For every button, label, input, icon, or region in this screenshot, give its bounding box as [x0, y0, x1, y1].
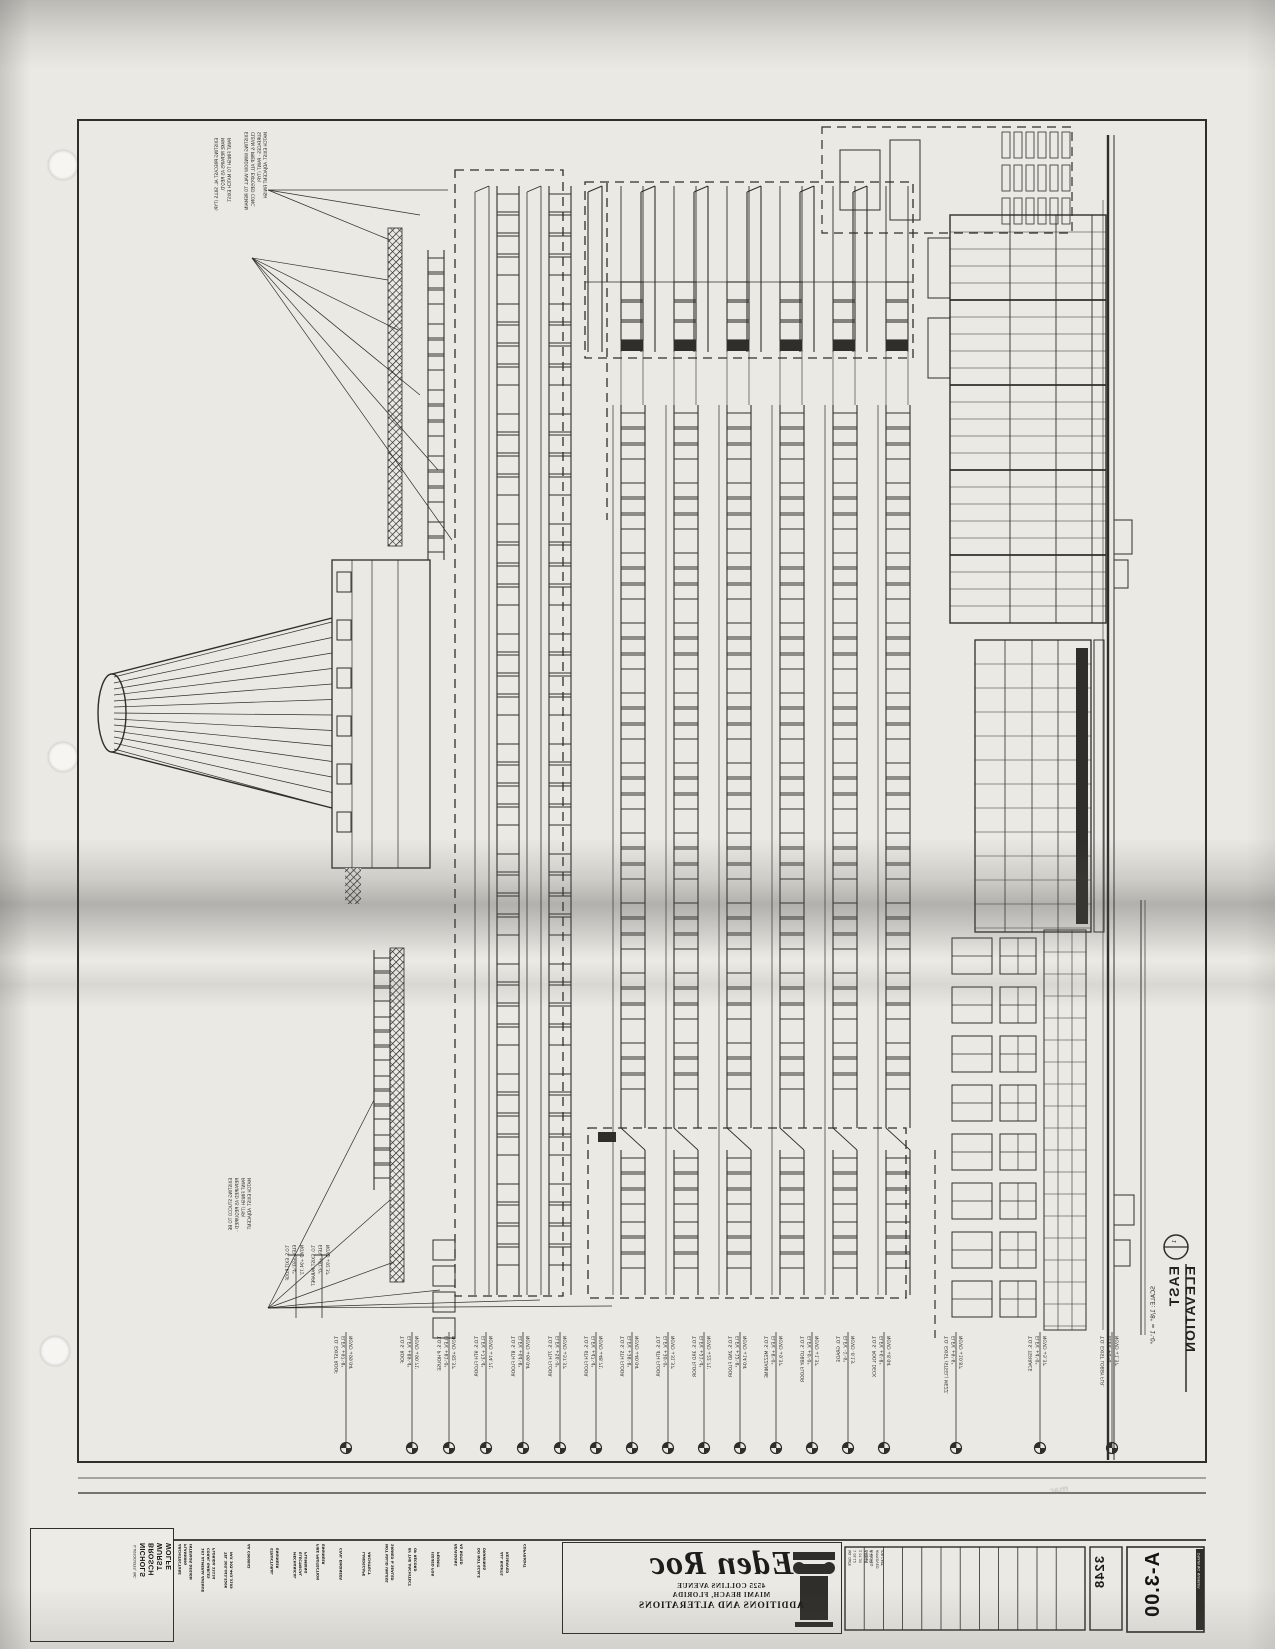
- consultant-column: LANDSCAPE ARCHITECT: [362, 1552, 380, 1636]
- project-identity: Eden Roc 4525 COLLINS AVENUE MIAMI BEACH…: [562, 1542, 840, 1632]
- consultant-column: DO NOT SCALE DRAWINGS: [477, 1548, 495, 1622]
- level-label: T.O. GRADE ELEV. -1'-6" NGVD -0.13': [836, 1336, 859, 1436]
- scanned-sheet: EAST ELEVATION SCALE: 1/8" = 1'-0" 1 T.O…: [0, 0, 1275, 1649]
- keynote: EXISTING WINDOW WALL TO REMAIN CLEAN & P…: [244, 132, 266, 260]
- level-label: T.O.S. P'HOUSE ELEV. +81'-0" NGVD +82.37…: [437, 1336, 460, 1436]
- drawing-title: EAST ELEVATION: [1166, 1266, 1198, 1394]
- level-label: T.O.S. TERRACE ELEV. +4'-0" NGVD +5.37': [1028, 1336, 1051, 1436]
- project-subtitle: ADDITIONS AND ALTERATIONS: [602, 1600, 840, 1612]
- level-label: T.O. EXIST LOBBY FLR. ELEV. +0'-0" NGVD …: [1100, 1336, 1123, 1436]
- sheet-number: A-3.00: [1142, 1552, 1164, 1630]
- consultant-column: TEL 305.443.5206 FAX 305.443.3109: [224, 1552, 242, 1616]
- consultant-column: COPYRIGHT: [523, 1544, 541, 1598]
- level-label: T.O.S. POOL DECK ELEV. +6'-8" NGVD +8.04…: [872, 1336, 895, 1436]
- keynote: EXISTING STUCCO TO BE REPAIRED AS REQUIR…: [228, 1178, 250, 1306]
- consultant-column: STRUCTURAL ENGINEER: [270, 1548, 288, 1632]
- firm-association: & ASSOCIATES, INC.: [133, 1545, 138, 1625]
- project-brand: Eden Roc: [602, 1546, 840, 1582]
- firm-name: NICHOLS BROSCH WURST WOLFE: [140, 1543, 174, 1629]
- drawing-scale: SCALE: 1/8" = 1'-0": [1150, 1286, 1158, 1396]
- level-label: T.O.S. ROOF ELEV. +89'-4" NGVD +90.71': [400, 1336, 423, 1436]
- level-label: T.O.S. 8TH FLOOR ELEV. +64'-8" NGVD +66.…: [511, 1336, 534, 1436]
- consultant-column: BY THE ARCHITECT OF RECORD: [408, 1548, 426, 1612]
- level-label-aux: T.O.S. EXIT ROOF ELEV. +93'-4" NGVD +94.…: [284, 1245, 307, 1317]
- project-address-2: MIAMI BEACH, FLORIDA: [602, 1591, 840, 1600]
- revision-column: NO. DATE 1 05.12 2 07.30 3 09.18 4 11.02: [848, 1550, 862, 1628]
- level-label: T.O.S. 9TH FLOOR ELEV. +73'-4" NGVD +74.…: [474, 1336, 497, 1436]
- level-label: T.O.S. 2ND FLOOR ELEV. +12'-8" NGVD +14.…: [728, 1336, 751, 1436]
- consultant-column: ARCHITECTURE PLANNING INTERIOR DESIGN: [178, 1544, 196, 1628]
- consultant-column: AA C000842: [247, 1544, 265, 1598]
- level-label-aux: T.O. EXIST PARAPET ELEV. +91'-0" NGVD +9…: [310, 1245, 333, 1317]
- level-label: T.O.S. MEZZANINE ELEV. +8'-0" NGVD +9.37…: [764, 1336, 787, 1436]
- sheet-number-label: DRAWING NUMBER: [1197, 1553, 1201, 1627]
- elevation-mark-number: 1: [1172, 1240, 1178, 1252]
- consultant-column: ALL RIGHTS RESERVED: [500, 1552, 518, 1616]
- level-label: T.O.S. LOBBY FLOOR ELEV. +0'-0" NGVD +1.…: [800, 1336, 823, 1436]
- consultant-column: CIVIL ENGINEER: [339, 1548, 357, 1602]
- revision-column: DRAWN CHECKED APPROVED JOB CAPT.: [865, 1550, 879, 1628]
- keynote: EXISTING PRECAST AL. SILLS (TYP) MAKE RE…: [214, 138, 236, 266]
- level-label: T.O.S. 7TH FLOOR ELEV. +56'-0" NGVD +57.…: [548, 1336, 571, 1436]
- level-label: T.O.S. 5TH FLOOR ELEV. +38'-8" NGVD +40.…: [620, 1336, 643, 1436]
- level-label: T.O. EXIST (STEEL) MEZZ. ELEV. +9'-6" NG…: [944, 1336, 967, 1436]
- consultant-column: MECHANICAL ELECTRICAL PLUMBING: [293, 1552, 311, 1626]
- consultant-column: NOT VALID UNLESS SIGNED & SEALED: [385, 1544, 403, 1618]
- level-label: T.O.S. 6TH FLOOR ELEV. +47'-4" NGVD +48.…: [584, 1336, 607, 1436]
- level-label: T.O.S. 3RD FLOOR ELEV. +21'-4" NGVD +22.…: [692, 1336, 715, 1436]
- level-label: T.O. EXIST ROOF ELEV. +97'-8" NGVD +99.0…: [334, 1336, 357, 1436]
- consultant-column: 161 ALMERIA AVENUE CORAL GABLES FLORIDA …: [201, 1548, 219, 1622]
- job-number: 3248: [1093, 1556, 1107, 1622]
- level-label: T.O.S. 4TH FLOOR ELEV. +30'-0" NGVD +31.…: [656, 1336, 679, 1436]
- consultant-column: FIRE PROTECTION ENGINEER: [316, 1544, 334, 1608]
- consultant-column: REVISIONS AS NOTED: [454, 1544, 472, 1628]
- project-address-1: 4525 COLLINS AVENUE: [602, 1582, 840, 1591]
- consultant-column: ISSUED FOR PERMIT: [431, 1552, 449, 1606]
